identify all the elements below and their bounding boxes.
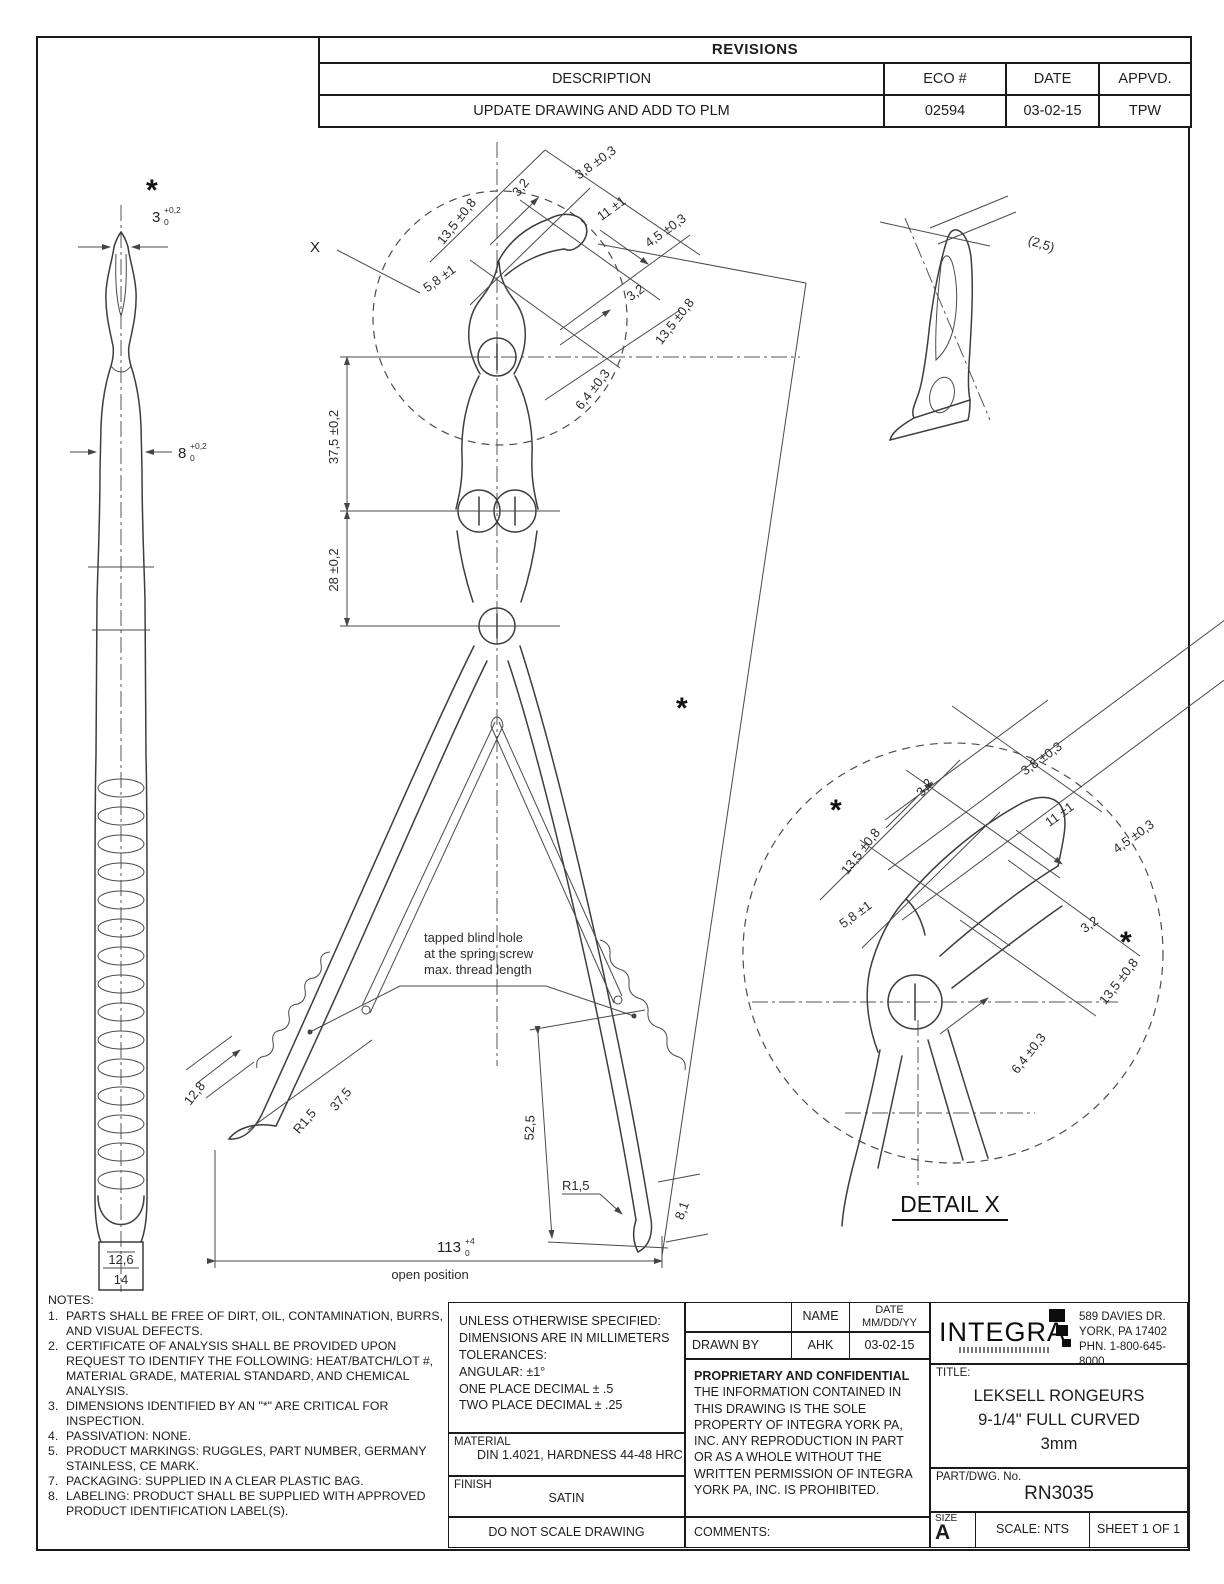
detail-dim-tip-width2: 3,2 xyxy=(1078,913,1101,936)
note-item: 5.PRODUCT MARKINGS: RUGGLES, PART NUMBER… xyxy=(48,1444,446,1474)
detail-dim-lines xyxy=(820,588,1224,1034)
dim-tip-tol-hi: +0,2 xyxy=(164,205,181,215)
name-date-header-row: NAME DATE MM/DD/YY xyxy=(685,1302,930,1332)
notes-heading: NOTES: xyxy=(48,1293,446,1308)
note-item: 7.PACKAGING: SUPPLIED IN A CLEAR PLASTIC… xyxy=(48,1474,446,1489)
dim-handle-radius: R1,5 xyxy=(290,1106,319,1137)
sheet-cell: SHEET 1 OF 1 xyxy=(1089,1513,1187,1547)
dim-handle-length: 37,5 xyxy=(327,1085,355,1114)
tapped-hole-note: tapped blind hole at the spring screw ma… xyxy=(308,930,637,1035)
drawing-title: LEKSELL RONGEURS 9-1/4" FULL CURVED 3mm xyxy=(931,1379,1187,1457)
detail-region-circle xyxy=(373,191,627,445)
dim-tip-offset: 8,1 xyxy=(672,1199,692,1221)
jaw-dim-lines xyxy=(430,150,700,400)
notes-block: NOTES: 1.PARTS SHALL BE FREE OF DIRT, OI… xyxy=(48,1293,446,1519)
logo-cell: INTEGRA 589 DAVIES DR. YORK, PA 17402 PH… xyxy=(930,1302,1188,1364)
integra-logo: INTEGRA xyxy=(939,1317,1066,1348)
dim-open-width-tol-lo: 0 xyxy=(465,1248,470,1258)
tolerances-cell: UNLESS OTHERWISE SPECIFIED: DIMENSIONS A… xyxy=(448,1302,685,1433)
note-item: 2.CERTIFICATE OF ANALYSIS SHALL BE PROVI… xyxy=(48,1339,446,1399)
dim-neck-width: 5,8 ±1 xyxy=(420,262,458,295)
main-view: X xyxy=(181,142,806,1282)
note-item: 8.LABELING: PRODUCT SHALL BE SUPPLIED WI… xyxy=(48,1489,446,1519)
material-cell: MATERIAL DIN 1.4021, HARDNESS 44-48 HRC xyxy=(448,1433,685,1476)
detail-dim-cup-width: 3,8 ±0,3 xyxy=(1018,739,1065,779)
dim-tip-thickness: (2,5) xyxy=(1026,232,1056,255)
dim-handle-inner-width: 12,6 xyxy=(108,1252,133,1267)
critical-asterisk-detail-1: * xyxy=(830,794,842,827)
do-not-scale-cell: DO NOT SCALE DRAWING xyxy=(448,1517,685,1548)
detail-dim-jaw-width2: 13,5 ±0,8 xyxy=(1096,955,1141,1007)
drawn-by-name: AHK xyxy=(791,1333,849,1358)
dim-cup-width: 3,8 ±0,3 xyxy=(572,143,619,183)
material-label: MATERIAL xyxy=(449,1434,684,1448)
dim-cup-span: 6,4 ±0,3 xyxy=(572,366,613,412)
side-view: * 3 +0,2 0 8 +0,2 0 12,6 14 xyxy=(70,174,207,1292)
drawn-by-label: DRAWN BY xyxy=(686,1333,791,1358)
drawn-by-date: 03-02-15 xyxy=(849,1333,929,1358)
title-cell: TITLE: LEKSELL RONGEURS 9-1/4" FULL CURV… xyxy=(930,1364,1188,1468)
detail-dim-neck-width: 5,8 ±1 xyxy=(836,898,874,931)
detail-x-caption: DETAIL X xyxy=(900,1191,1000,1217)
detail-dim-cup-span: 6,4 ±0,3 xyxy=(1008,1030,1049,1076)
proprietary-title: PROPRIETARY AND CONFIDENTIAL xyxy=(694,1368,923,1384)
integra-logo-subtext xyxy=(959,1347,1051,1353)
dim-shaft-tol-lo: 0 xyxy=(190,453,195,463)
dim-open-height: 52,5 xyxy=(521,1115,537,1141)
dim-span-upper: 37,5 ±0,2 xyxy=(326,410,341,464)
drawing-sheet: REVISIONS DESCRIPTION ECO # DATE APPVD. … xyxy=(0,0,1224,1584)
dim-jaw-tip-width2: 3,2 xyxy=(624,281,647,304)
dim-jaw-tip-width: 3,2 xyxy=(509,175,532,198)
dim-handle-outer-width: 14 xyxy=(114,1272,128,1287)
size-cell: SIZE A xyxy=(931,1513,975,1547)
note-item: 3.DIMENSIONS IDENTIFIED BY AN "*" ARE CR… xyxy=(48,1399,446,1429)
date-header: DATE MM/DD/YY xyxy=(849,1303,929,1331)
svg-text:at the spring screw: at the spring screw xyxy=(424,946,534,961)
dim-tip-radius: R1,5 xyxy=(562,1178,589,1193)
dim-shaft-width: 8 xyxy=(178,445,186,462)
size-scale-sheet-row: SIZE A SCALE: NTS SHEET 1 OF 1 xyxy=(930,1512,1188,1548)
finish-cell: FINISH SATIN xyxy=(448,1476,685,1517)
open-position-label: open position xyxy=(391,1267,468,1282)
part-number: RN3035 xyxy=(931,1483,1187,1505)
dim-cup-length: 11 ±1 xyxy=(594,193,628,224)
part-label: PART/DWG. No. xyxy=(931,1469,1187,1483)
company-address: 589 DAVIES DR. YORK, PA 17402 PHN. 1-800… xyxy=(1079,1310,1187,1370)
dim-tip-width: 3 xyxy=(152,209,160,226)
detail-x-circle xyxy=(743,743,1163,1163)
name-header: NAME xyxy=(791,1303,849,1331)
critical-asterisk-detail-2: * xyxy=(1120,926,1132,959)
note-item: 4.PASSIVATION: NONE. xyxy=(48,1429,446,1444)
dim-cup-depth: 4,5 ±0,3 xyxy=(642,211,689,251)
drawn-by-row: DRAWN BY AHK 03-02-15 xyxy=(685,1332,930,1359)
title-label: TITLE: xyxy=(931,1365,1187,1379)
size-value: A xyxy=(935,1524,975,1543)
note-item: 1.PARTS SHALL BE FREE OF DIRT, OIL, CONT… xyxy=(48,1309,446,1339)
detail-dim-tip-width: 3,2 xyxy=(913,775,936,798)
dim-tip-tol-lo: 0 xyxy=(164,217,169,227)
comments-cell: COMMENTS: xyxy=(685,1517,930,1548)
proprietary-cell: PROPRIETARY AND CONFIDENTIAL THE INFORMA… xyxy=(685,1359,930,1517)
detail-callout-label: X xyxy=(310,239,320,256)
dim-span-lower: 28 ±0,2 xyxy=(326,548,341,591)
critical-asterisk-main: * xyxy=(676,692,688,725)
tip-view: (2,5) xyxy=(880,196,1056,440)
critical-asterisk: * xyxy=(146,174,158,207)
detail-x-view: * 13,5 ±0,8 3,2 3,8 ±0,3 11 ±1 4,5 ±0,3 … xyxy=(743,588,1224,1226)
dim-handle-offset: 12,8 xyxy=(181,1079,208,1108)
svg-text:max. thread length: max. thread length xyxy=(424,962,532,977)
dim-open-width: 113 xyxy=(437,1239,461,1256)
dim-shaft-tol-hi: +0,2 xyxy=(190,441,207,451)
dim-open-width-tol-hi: +4 xyxy=(465,1236,475,1246)
proprietary-body: THE INFORMATION CONTAINED IN THIS DRAWIN… xyxy=(694,1384,923,1498)
finish-label: FINISH xyxy=(449,1477,684,1491)
dim-jaw-width2: 13,5 ±0,8 xyxy=(652,295,697,347)
svg-text:tapped blind hole: tapped blind hole xyxy=(424,930,523,945)
material-value: DIN 1.4021, HARDNESS 44-48 HRC xyxy=(449,1448,684,1462)
pivot-screws xyxy=(458,338,536,644)
part-number-cell: PART/DWG. No. RN3035 xyxy=(930,1468,1188,1512)
finish-value: SATIN xyxy=(449,1491,684,1505)
scale-cell: SCALE: NTS xyxy=(975,1513,1089,1547)
